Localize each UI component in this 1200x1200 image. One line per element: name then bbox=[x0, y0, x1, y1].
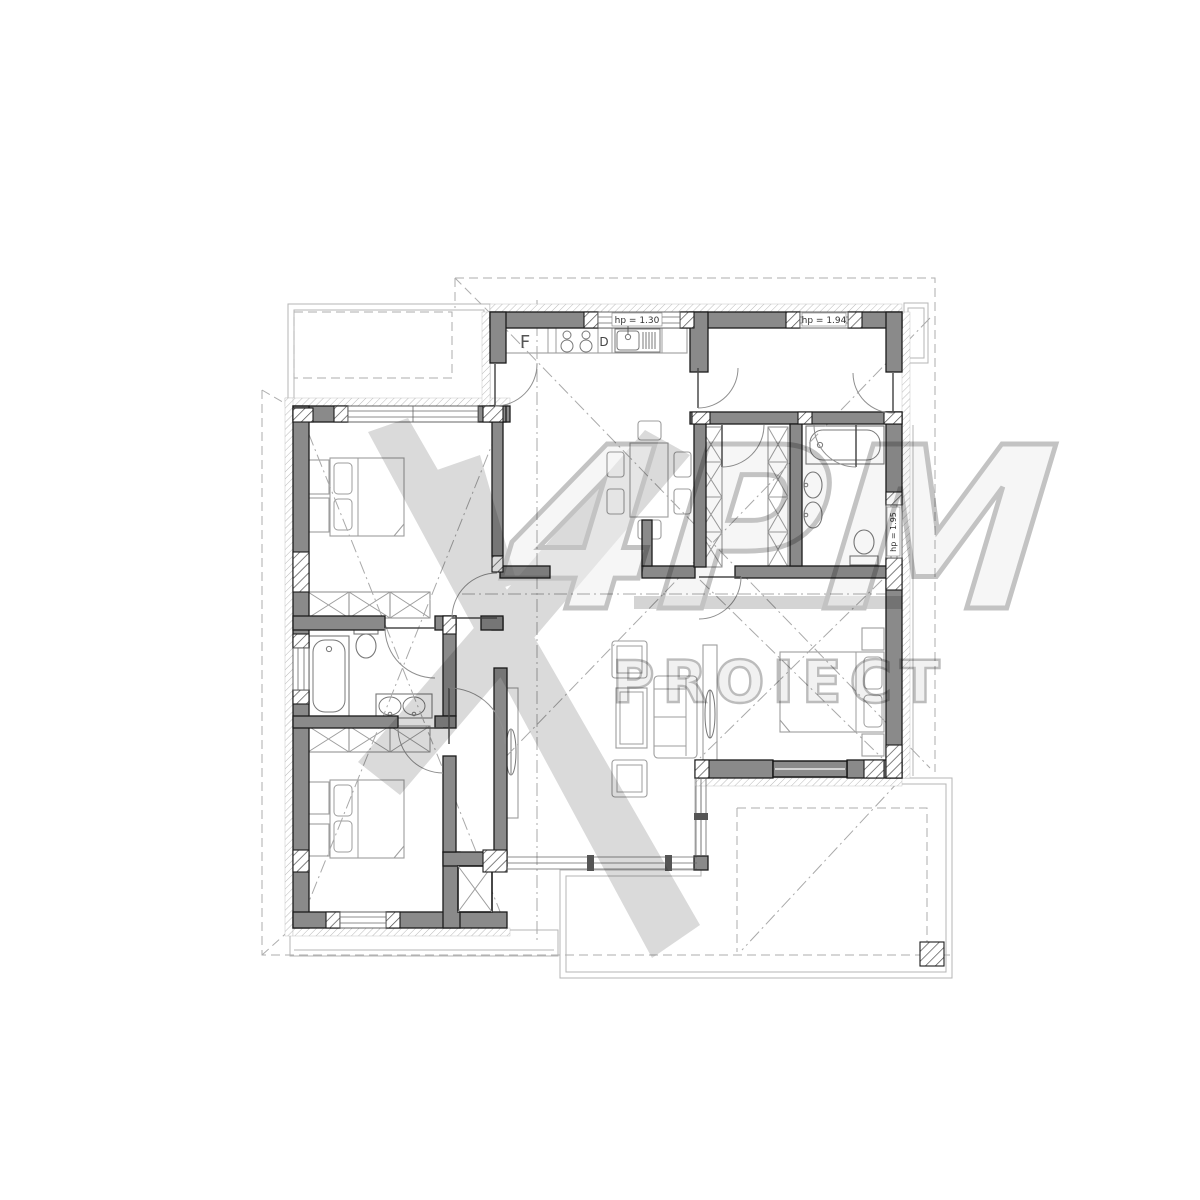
floor-plan-canvas: hp = 1.30 hp = 1.94 bbox=[0, 0, 1200, 1200]
wardrobe bbox=[308, 592, 430, 618]
porch-outline bbox=[288, 304, 490, 410]
floor-plan-drawing: hp = 1.30 hp = 1.94 bbox=[0, 0, 1200, 1200]
porch-roof-dashed bbox=[294, 312, 452, 378]
terrace-column bbox=[920, 942, 944, 966]
kitchen-window-label: hp = 1.30 bbox=[615, 316, 660, 326]
nightstand bbox=[309, 498, 329, 532]
roof-diagonal bbox=[742, 780, 900, 950]
nightstand bbox=[309, 824, 329, 856]
watermark-logo: 4PM bbox=[491, 401, 1065, 662]
fridge-label: F bbox=[520, 332, 530, 353]
watermark-word: PROIECT bbox=[612, 648, 948, 716]
nightstand bbox=[862, 734, 884, 756]
hall-window-label: hp = 1.94 bbox=[802, 316, 847, 326]
bathtub-icon bbox=[309, 636, 349, 716]
hall-window: hp = 1.94 bbox=[800, 312, 848, 328]
bed bbox=[330, 780, 404, 858]
nightstand bbox=[309, 782, 329, 814]
bedroom-1-window bbox=[348, 406, 478, 422]
bathroom-1-door bbox=[385, 628, 435, 678]
kitchen-counter bbox=[503, 328, 687, 353]
bathroom-1-window bbox=[293, 648, 309, 690]
dishwasher-label: D bbox=[599, 335, 608, 349]
bedroom-2-window bbox=[340, 912, 386, 928]
bedroom-3-window bbox=[773, 761, 847, 777]
shaft bbox=[458, 866, 492, 912]
living-glazing-east bbox=[694, 778, 708, 856]
